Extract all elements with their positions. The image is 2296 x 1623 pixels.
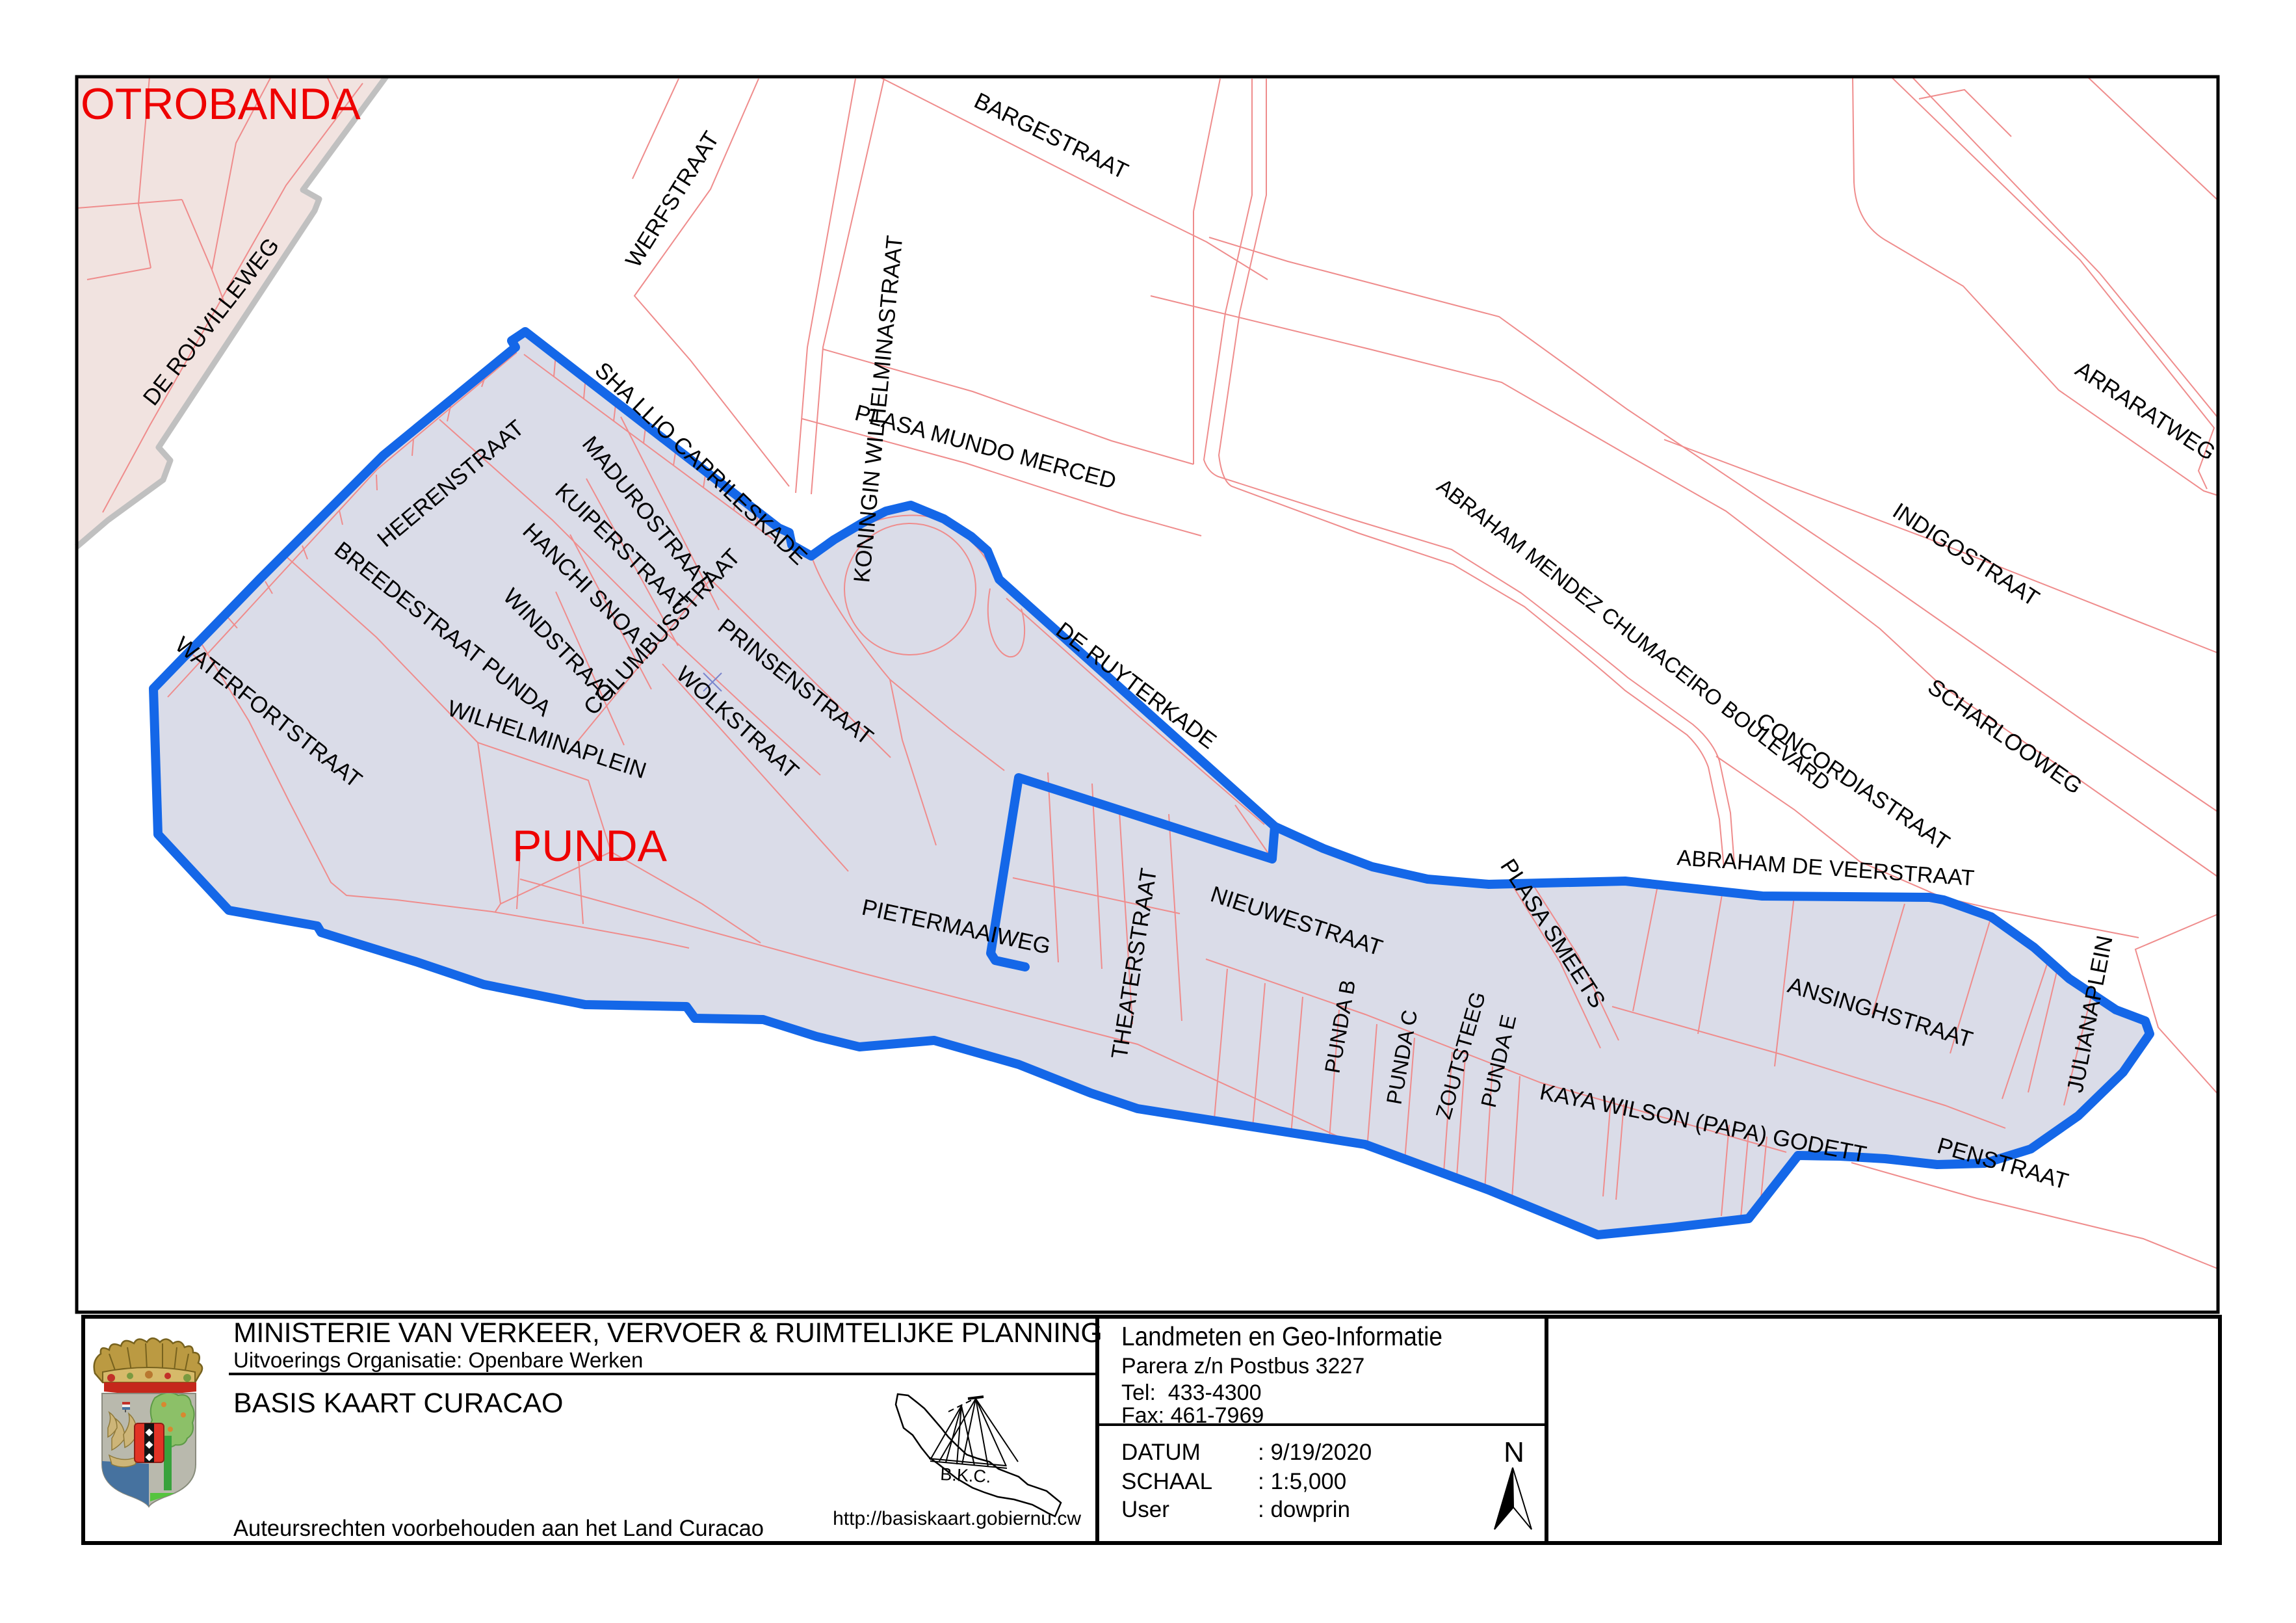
svg-text:: dowprin: : dowprin <box>1258 1497 1350 1522</box>
svg-text:PUNDA: PUNDA <box>512 821 668 871</box>
svg-text:DATUM: DATUM <box>1121 1440 1201 1465</box>
svg-text:: 1:5,000: : 1:5,000 <box>1258 1469 1346 1494</box>
svg-text:Tel: 433-4300: Tel: 433-4300 <box>1121 1380 1262 1405</box>
svg-text:: 9/19/2020: : 9/19/2020 <box>1258 1440 1372 1465</box>
svg-text:Auteursrechten voorbehouden aa: Auteursrechten voorbehouden aan het Land… <box>233 1516 764 1541</box>
svg-text:BASIS KAART CURACAO: BASIS KAART CURACAO <box>233 1388 563 1419</box>
svg-text:Fax: 461-7969: Fax: 461-7969 <box>1121 1403 1264 1428</box>
svg-text:Landmeten en Geo-Informatie: Landmeten en Geo-Informatie <box>1121 1321 1442 1351</box>
svg-text:N: N <box>1504 1436 1524 1468</box>
svg-text:OTROBANDA: OTROBANDA <box>81 79 361 129</box>
svg-text:B.K.C.: B.K.C. <box>940 1464 991 1486</box>
svg-text:Parera z/n Postbus 3227: Parera z/n Postbus 3227 <box>1121 1354 1364 1379</box>
svg-text:User: User <box>1121 1497 1169 1522</box>
svg-text:MINISTERIE VAN VERKEER, VERVOE: MINISTERIE VAN VERKEER, VERVOER & RUIMTE… <box>233 1317 1102 1349</box>
svg-text:Uitvoerings Organisatie: Openb: Uitvoerings Organisatie: Openbare Werken <box>233 1348 643 1372</box>
svg-text:SCHAAL: SCHAAL <box>1121 1469 1212 1494</box>
